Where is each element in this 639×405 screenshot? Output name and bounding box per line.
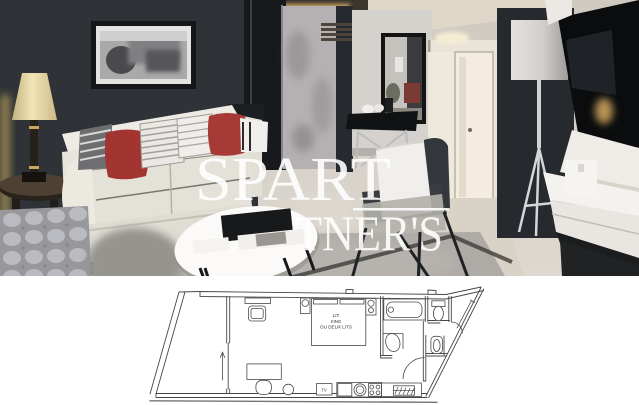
svg-text:TNER'S: TNER'S [295,205,443,261]
svg-text:TV: TV [321,388,327,393]
svg-text:OU DEUX LITS: OU DEUX LITS [320,325,352,330]
svg-text:LIT: LIT [333,313,340,318]
svg-text:KING: KING [331,319,341,324]
svg-text:SPART: SPART [195,146,391,214]
